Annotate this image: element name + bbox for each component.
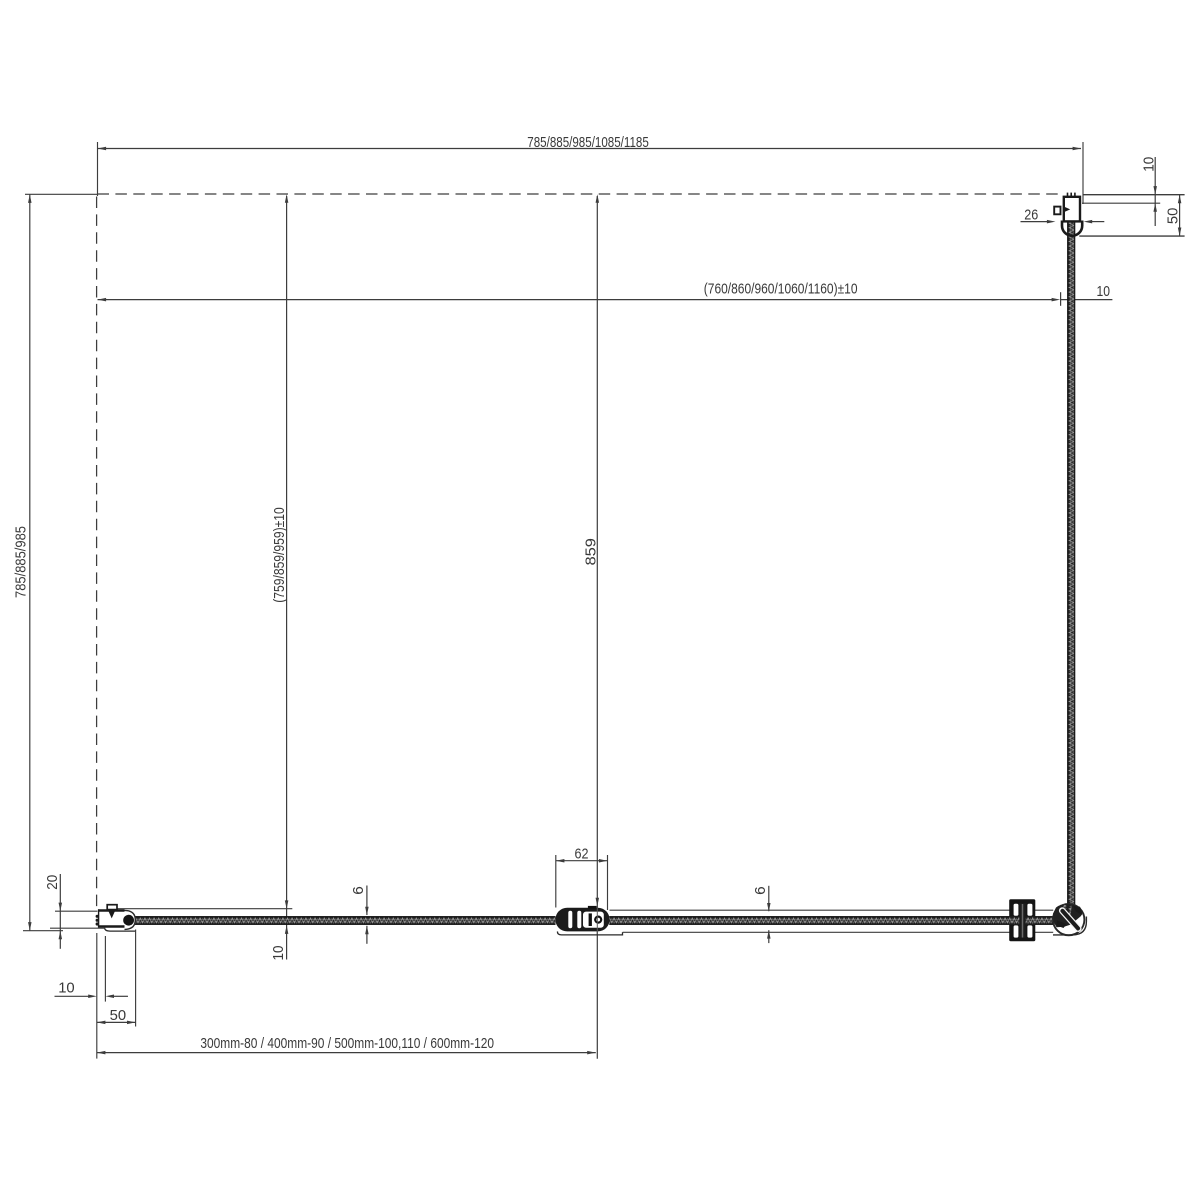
svg-text:10: 10: [58, 979, 74, 996]
svg-text:6: 6: [752, 886, 769, 895]
svg-text:6: 6: [350, 886, 367, 895]
svg-text:(760/860/960/1060/1160)±10: (760/860/960/1060/1160)±10: [704, 281, 858, 298]
svg-text:26: 26: [1024, 207, 1038, 224]
svg-text:785/885/985/1085/1185: 785/885/985/1085/1185: [527, 134, 649, 151]
svg-text:50: 50: [110, 1007, 127, 1024]
svg-text:50: 50: [1164, 208, 1181, 225]
svg-text:859: 859: [582, 538, 599, 566]
svg-text:785/885/985: 785/885/985: [12, 526, 29, 598]
svg-text:10: 10: [1140, 157, 1157, 172]
svg-text:10: 10: [270, 946, 287, 961]
svg-text:10: 10: [1097, 283, 1111, 300]
svg-text:20: 20: [44, 875, 61, 890]
svg-text:300mm-80 / 400mm-90 / 500mm-10: 300mm-80 / 400mm-90 / 500mm-100,110 / 60…: [200, 1035, 494, 1052]
svg-text:62: 62: [575, 845, 589, 862]
svg-text:(759/859/959)±10: (759/859/959)±10: [271, 507, 288, 603]
